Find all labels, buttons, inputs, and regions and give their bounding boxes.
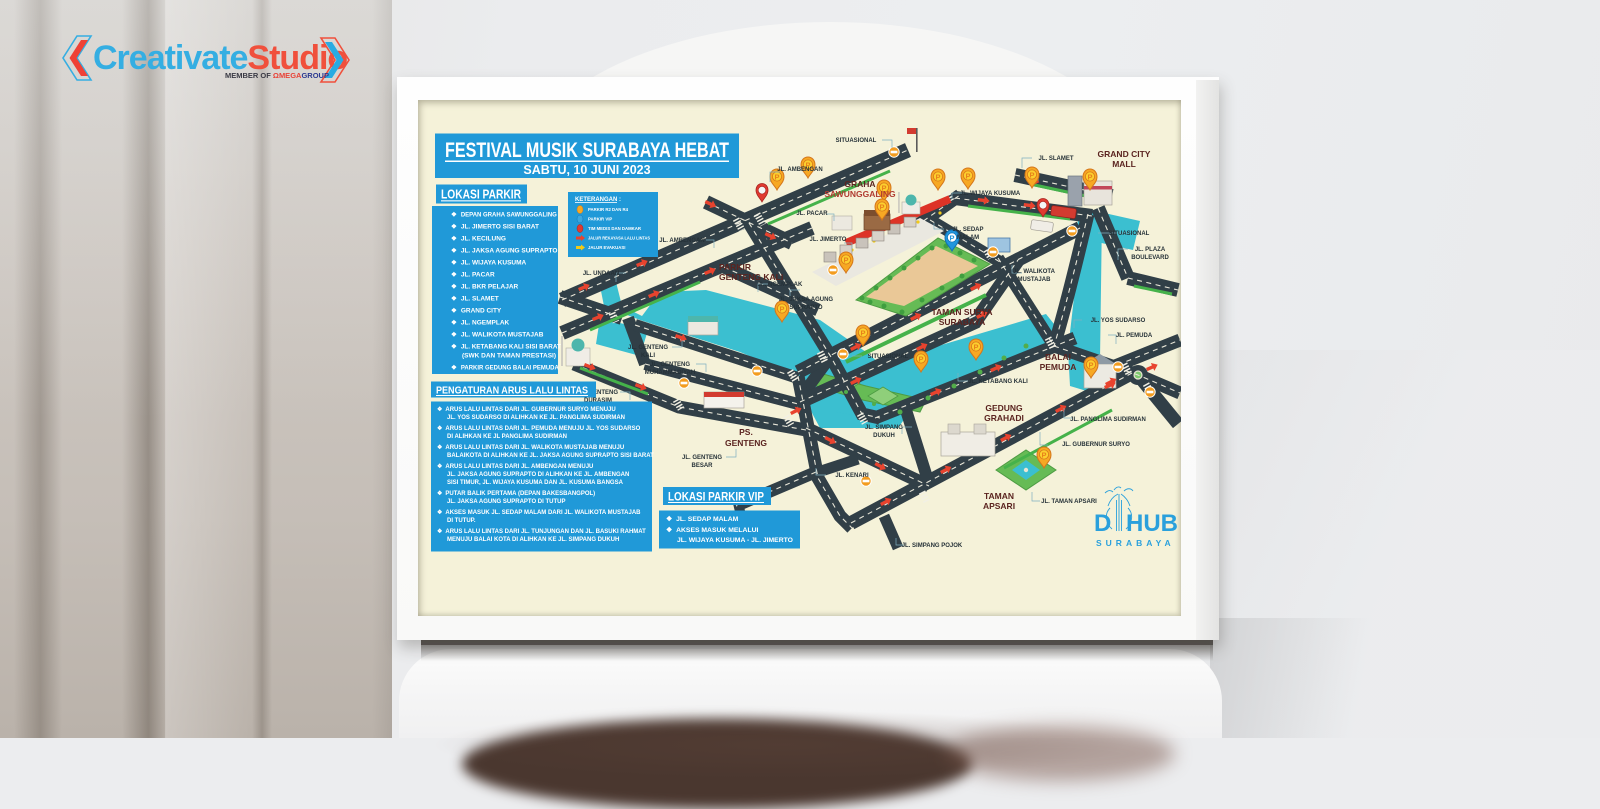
svg-text:JL. SIMPANG: JL. SIMPANG bbox=[865, 425, 903, 431]
svg-text:BALAI: BALAI bbox=[1045, 352, 1071, 362]
svg-text:JL. YOS SUDARSO: JL. YOS SUDARSO bbox=[1091, 318, 1146, 324]
svg-text:JL. PEMUDA: JL. PEMUDA bbox=[1116, 333, 1153, 339]
svg-text:❖JL. JAKSA AGUNG SUPRAPTO: ❖JL. JAKSA AGUNG SUPRAPTO bbox=[451, 247, 557, 255]
svg-text:❖DEPAN GRAHA SAWUNGGALING: ❖DEPAN GRAHA SAWUNGGALING bbox=[451, 211, 557, 219]
svg-text:JL. AMBENGAN: JL. AMBENGAN bbox=[777, 167, 822, 173]
svg-text:GRAND CITY: GRAND CITY bbox=[1098, 149, 1151, 159]
svg-text:SUPRAPTO: SUPRAPTO bbox=[789, 305, 823, 311]
svg-text:JL. PACAR: JL. PACAR bbox=[796, 211, 828, 217]
svg-text:SITUASIONAL: SITUASIONAL bbox=[868, 354, 909, 360]
svg-text:GRAHADI: GRAHADI bbox=[984, 413, 1024, 423]
svg-text:❖PARKIR GEDUNG BALAI PEMUDA: ❖PARKIR GEDUNG BALAI PEMUDA bbox=[451, 364, 559, 372]
svg-text:❖JL. KETABANG KALI SISI BARAT: ❖JL. KETABANG KALI SISI BARAT bbox=[451, 343, 561, 351]
svg-text:JL. YOS SUDARSO DI ALIHKAN KE: JL. YOS SUDARSO DI ALIHKAN KE JL. PANGLI… bbox=[447, 415, 625, 421]
svg-text:JL. JAKSA AGUNG SUPRAPTO DI AL: JL. JAKSA AGUNG SUPRAPTO DI ALIHKAN KE J… bbox=[447, 472, 629, 478]
svg-text:JL. KETABANG KALI: JL. KETABANG KALI bbox=[968, 379, 1028, 385]
svg-text:LOKASI PARKIR VIP: LOKASI PARKIR VIP bbox=[668, 492, 764, 504]
svg-text:❖ARUS LALU LINTAS DARI JL. PEM: ❖ARUS LALU LINTAS DARI JL. PEMUDA MENUJU… bbox=[437, 425, 641, 432]
svg-text:JL. NGEMPLAK: JL. NGEMPLAK bbox=[758, 282, 803, 288]
svg-text:❖ARUS LALU LINTAS DARI JL. AMB: ❖ARUS LALU LINTAS DARI JL. AMBENGAN MENU… bbox=[437, 463, 593, 470]
svg-text:JL. SIMPANG POJOK: JL. SIMPANG POJOK bbox=[902, 543, 963, 549]
svg-text:JL. GUBERNUR SURYO: JL. GUBERNUR SURYO bbox=[1062, 442, 1130, 448]
svg-text:MALAM: MALAM bbox=[957, 235, 979, 241]
svg-text:MUHAMMADIYAH: MUHAMMADIYAH bbox=[645, 370, 695, 376]
svg-text:GEDUNG: GEDUNG bbox=[985, 403, 1023, 413]
svg-text:❖PUTAR BALIK PERTAMA (DEPAN BA: ❖PUTAR BALIK PERTAMA (DEPAN BAKESBANGPOL… bbox=[437, 490, 595, 497]
svg-text:JL. WIJAYA KUSUMA: JL. WIJAYA KUSUMA bbox=[960, 191, 1021, 197]
svg-text:JL. AMBENGAN: JL. AMBENGAN bbox=[659, 238, 704, 244]
svg-text:❖JL. SEDAP MALAM: ❖JL. SEDAP MALAM bbox=[666, 515, 739, 523]
svg-text:TIM MEDIS DAN DAMKAR: TIM MEDIS DAN DAMKAR bbox=[588, 226, 642, 231]
svg-text:GENTENG: GENTENG bbox=[725, 438, 767, 448]
svg-text:MEMBER OF ΩMEGAGROUP: MEMBER OF ΩMEGAGROUP bbox=[225, 71, 329, 80]
svg-text:JL. GENTENG: JL. GENTENG bbox=[650, 362, 690, 368]
svg-text:JL. JIMERTO: JL. JIMERTO bbox=[810, 237, 847, 243]
svg-text:SISI TIMUR, JL. WIJAYA KUSUMA: SISI TIMUR, JL. WIJAYA KUSUMA DAN JL. KU… bbox=[447, 480, 624, 486]
svg-text:SURABAYA: SURABAYA bbox=[939, 317, 986, 327]
svg-text:LOKASI PARKIR: LOKASI PARKIR bbox=[441, 188, 521, 202]
svg-text:PENGATURAN ARUS LALU LINTAS: PENGATURAN ARUS LALU LINTAS bbox=[436, 385, 588, 397]
svg-text:❖JL. WIJAYA KUSUMA: ❖JL. WIJAYA KUSUMA bbox=[451, 259, 527, 267]
svg-text:JALUR EVAKUASI: JALUR EVAKUASI bbox=[588, 245, 625, 250]
svg-text:TAMAN: TAMAN bbox=[984, 491, 1014, 501]
svg-text:❖JL. JIMERTO SISI BARAT: ❖JL. JIMERTO SISI BARAT bbox=[451, 223, 539, 231]
svg-text:JL. UNDAAN: JL. UNDAAN bbox=[583, 271, 619, 277]
svg-text:JL. JAKSA AGUNG SUPRAPTO DI TU: JL. JAKSA AGUNG SUPRAPTO DI TUTUP bbox=[447, 499, 565, 505]
svg-text:❖JL. BKR PELAJAR: ❖JL. BKR PELAJAR bbox=[451, 283, 519, 291]
svg-text:❖AKSES MASUK JL. SEDAP MALAM D: ❖AKSES MASUK JL. SEDAP MALAM DARI JL. WA… bbox=[437, 509, 641, 516]
svg-text:JL. GENTENG: JL. GENTENG bbox=[682, 455, 722, 461]
svg-text:PEMUDA: PEMUDA bbox=[1040, 362, 1077, 372]
svg-text:PS.: PS. bbox=[739, 427, 753, 437]
svg-text:JL. JAKSA AGUNG: JL. JAKSA AGUNG bbox=[779, 297, 834, 303]
svg-text:PARKIR R2 DAN R4: PARKIR R2 DAN R4 bbox=[588, 207, 629, 212]
svg-text:D: D bbox=[1094, 510, 1111, 537]
svg-text:PARKIR: PARKIR bbox=[719, 262, 751, 272]
svg-text:JL. SLAMET: JL. SLAMET bbox=[1038, 156, 1073, 162]
svg-text:JL. WIJAYA KUSUMA - JL. JIMERT: JL. WIJAYA KUSUMA - JL. JIMERTO bbox=[677, 537, 793, 544]
svg-text:JL. KENARI: JL. KENARI bbox=[835, 473, 869, 479]
svg-text:❖ARUS LALU LINTAS DARI JL. GUB: ❖ARUS LALU LINTAS DARI JL. GUBERNUR SURY… bbox=[437, 406, 616, 413]
svg-text:SITUASIONAL: SITUASIONAL bbox=[1109, 231, 1150, 237]
svg-text:JL. PLAZA: JL. PLAZA bbox=[1135, 247, 1166, 253]
svg-text:❖ARUS LALU LINTAS DARI JL. WAL: ❖ARUS LALU LINTAS DARI JL. WALIKOTA MUST… bbox=[437, 444, 624, 451]
svg-text:JL. WALIKOTA: JL. WALIKOTA bbox=[1013, 269, 1056, 275]
svg-text:DUKUH: DUKUH bbox=[873, 433, 895, 439]
svg-text:SITUASIONAL: SITUASIONAL bbox=[836, 138, 877, 144]
svg-text:HUB: HUB bbox=[1126, 510, 1178, 537]
svg-text:JL. PANGLIMA SUDIRMAN: JL. PANGLIMA SUDIRMAN bbox=[1070, 417, 1146, 423]
svg-text:BESAR: BESAR bbox=[691, 463, 713, 469]
svg-text:SABTU, 10 JUNI 2023: SABTU, 10 JUNI 2023 bbox=[523, 163, 650, 177]
svg-text:❖JL. WALIKOTA MUSTAJAB: ❖JL. WALIKOTA MUSTAJAB bbox=[451, 331, 544, 339]
svg-text:JL. SEDAP: JL. SEDAP bbox=[952, 227, 983, 233]
svg-text:FESTIVAL MUSIK SURABAYA HEBAT: FESTIVAL MUSIK SURABAYA HEBAT bbox=[445, 139, 729, 162]
svg-text:DI TUTUP.: DI TUTUP. bbox=[447, 518, 476, 524]
svg-text:PARKIR VIP: PARKIR VIP bbox=[588, 217, 612, 222]
svg-text:JL. TAMAN APSARI: JL. TAMAN APSARI bbox=[1041, 499, 1097, 505]
svg-text:(SWK DAN TAMAN PRESTASI): (SWK DAN TAMAN PRESTASI) bbox=[462, 353, 556, 360]
svg-text:JL. GENTENG: JL. GENTENG bbox=[628, 345, 668, 351]
svg-text:BALAIKOTA DI ALIHKAN KE JL. JA: BALAIKOTA DI ALIHKAN KE JL. JAKSA AGUNG … bbox=[447, 453, 654, 459]
svg-text:GENTENG KALI: GENTENG KALI bbox=[719, 272, 783, 282]
svg-text:KALI: KALI bbox=[641, 353, 655, 359]
svg-text:SAWUNGGALING: SAWUNGGALING bbox=[824, 189, 896, 199]
svg-text:MALL: MALL bbox=[1112, 159, 1136, 169]
svg-text:❖ARUS LALU LINTAS DARI JL. TUN: ❖ARUS LALU LINTAS DARI JL. TUNJUNGAN DAN… bbox=[437, 528, 646, 535]
svg-text:DI ALIHKAN KE JL PANGLIMA SUDI: DI ALIHKAN KE JL PANGLIMA SUDIRMAN bbox=[447, 434, 567, 440]
svg-text:BOULEVARD: BOULEVARD bbox=[1131, 255, 1169, 261]
svg-text:MUSTAJAB: MUSTAJAB bbox=[1018, 277, 1052, 283]
svg-text:APSARI: APSARI bbox=[983, 501, 1015, 511]
svg-text:❖AKSES MASUK MELALUI: ❖AKSES MASUK MELALUI bbox=[666, 526, 759, 534]
svg-text:SURABAYA: SURABAYA bbox=[1096, 538, 1175, 548]
svg-text:MENUJU BALAI KOTA DI ALIHKAN K: MENUJU BALAI KOTA DI ALIHKAN KE JL. SIMP… bbox=[447, 537, 619, 543]
svg-text:TAMAN SURYA: TAMAN SURYA bbox=[931, 307, 992, 317]
svg-text:GRAHA: GRAHA bbox=[844, 179, 875, 189]
svg-text:JALUR REKAYASA LALU LINTAS: JALUR REKAYASA LALU LINTAS bbox=[588, 236, 650, 241]
